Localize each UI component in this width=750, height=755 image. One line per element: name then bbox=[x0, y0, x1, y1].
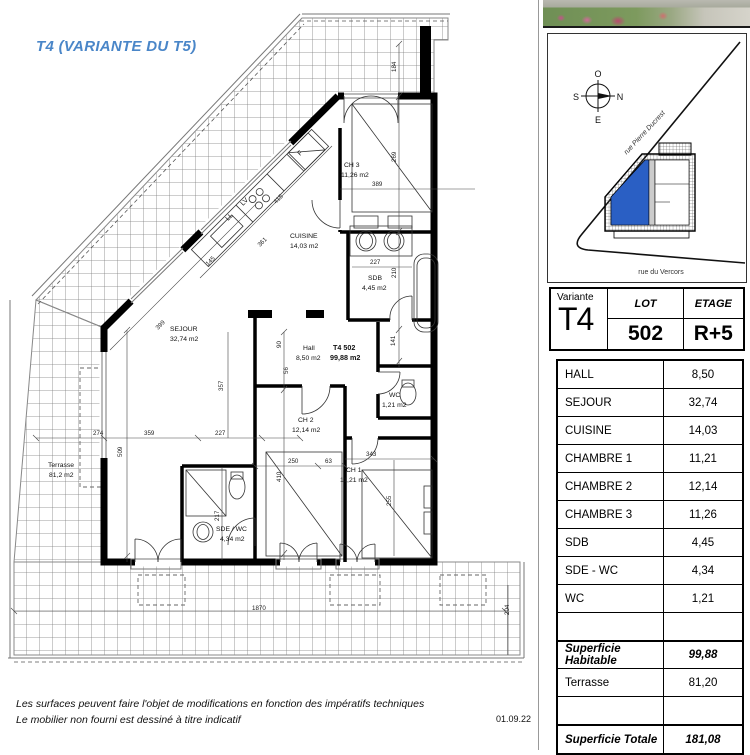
site-plan: O S N E rue Pierre Ducrest rue du Vercor… bbox=[547, 33, 747, 283]
dimension-label: 217 bbox=[214, 510, 221, 521]
room-area: 12,14 bbox=[663, 473, 742, 500]
rooms-table: HALL8,50SEJOUR32,74CUISINE14,03CHAMBRE 1… bbox=[556, 359, 744, 755]
table-row: HALL8,50 bbox=[558, 361, 742, 389]
room-area: 14,03 bbox=[663, 417, 742, 444]
room-label: HALL bbox=[558, 361, 663, 388]
room-label bbox=[558, 697, 663, 724]
room-label: CHAMBRE 2 bbox=[558, 473, 663, 500]
room-name-label: CH 3 bbox=[344, 162, 360, 169]
dimension-label: 274 bbox=[93, 430, 104, 437]
table-row: CHAMBRE 111,21 bbox=[558, 445, 742, 473]
room-area: 11,21 bbox=[663, 445, 742, 472]
compass-o: O bbox=[594, 69, 601, 79]
room-name-label: CUISINE bbox=[290, 233, 318, 240]
compass-s: S bbox=[573, 92, 579, 102]
etage-cell: ETAGE R+5 bbox=[684, 289, 743, 349]
room-area: 99,88 bbox=[663, 642, 742, 668]
room-label: CHAMBRE 3 bbox=[558, 501, 663, 528]
room-name-label: T4 502 bbox=[333, 343, 355, 352]
room-label bbox=[558, 613, 663, 640]
room-name-label: 81,2 m2 bbox=[49, 472, 74, 479]
room-area: 4,34 bbox=[663, 557, 742, 584]
room-label: SDE - WC bbox=[558, 557, 663, 584]
dimension-label: 210 bbox=[391, 267, 398, 278]
footer-note-2: Le mobilier non fourni est dessiné à tit… bbox=[16, 714, 241, 726]
floor-plan: SEJOUR32,74 m2CUISINE14,03 m2CH 311,26 m… bbox=[0, 0, 540, 750]
table-row: SDB4,45 bbox=[558, 529, 742, 557]
compass-e: E bbox=[595, 115, 601, 125]
room-name-label: SDE / WC bbox=[216, 526, 247, 533]
room-name-label: 32,74 m2 bbox=[170, 336, 199, 343]
table-row: Superficie Habitable99,88 bbox=[558, 641, 742, 669]
site-building bbox=[605, 143, 695, 238]
room-label: Superficie Habitable bbox=[558, 642, 663, 668]
room-name-label: CH 2 bbox=[298, 417, 314, 424]
room-area: 32,74 bbox=[663, 389, 742, 416]
table-row: SDE - WC4,34 bbox=[558, 557, 742, 585]
room-label: Terrasse bbox=[558, 669, 663, 696]
room-area: 81,20 bbox=[663, 669, 742, 696]
variante-cell: Variante T4 bbox=[551, 289, 608, 349]
room-area: 1,21 bbox=[663, 585, 742, 612]
photo-thumbnail bbox=[543, 0, 750, 28]
room-area: 8,50 bbox=[663, 361, 742, 388]
compass-icon: O S N E bbox=[573, 69, 623, 125]
street-label-bottom: rue du Vercors bbox=[638, 269, 684, 276]
dimension-label: 359 bbox=[144, 430, 155, 437]
dimension-label: 389 bbox=[372, 181, 383, 188]
room-label: SEJOUR bbox=[558, 389, 663, 416]
wall-stub bbox=[248, 310, 272, 318]
compass-n: N bbox=[617, 92, 624, 102]
room-area bbox=[663, 613, 742, 640]
variante-value: T4 bbox=[558, 301, 593, 338]
table-row: WC1,21 bbox=[558, 585, 742, 613]
room-name-label: 14,03 m2 bbox=[290, 243, 319, 250]
wall-stub bbox=[306, 310, 324, 318]
room-name-label: 11,26 m2 bbox=[341, 172, 369, 179]
dimension-label: 90 bbox=[276, 341, 283, 348]
room-name-label: WC bbox=[389, 392, 400, 399]
room-name-label: 4,45 m2 bbox=[362, 285, 387, 292]
room-label: CUISINE bbox=[558, 417, 663, 444]
date-label: 01.09.22 bbox=[496, 714, 531, 724]
room-area: 181,08 bbox=[663, 726, 742, 753]
wall-block bbox=[420, 26, 431, 96]
room-name-label: 99,88 m2 bbox=[330, 353, 360, 362]
dimension-label: 56 bbox=[283, 367, 290, 374]
etage-label: ETAGE bbox=[684, 289, 743, 319]
table-row bbox=[558, 613, 742, 641]
room-name-label: CH 1 bbox=[346, 467, 362, 474]
dimension-label: 1870 bbox=[252, 605, 266, 612]
dimension-label: 227 bbox=[370, 259, 381, 266]
room-name-label: 4,34 m2 bbox=[220, 536, 245, 543]
room-name-label: 12,14 m2 bbox=[292, 427, 321, 434]
table-row: Superficie Totale181,08 bbox=[558, 725, 742, 753]
table-row bbox=[558, 697, 742, 725]
dimension-label: 509 bbox=[117, 446, 124, 457]
dimension-label: 250 bbox=[288, 458, 299, 465]
table-row: CHAMBRE 311,26 bbox=[558, 501, 742, 529]
lot-label: LOT bbox=[608, 289, 682, 319]
room-area bbox=[663, 697, 742, 724]
header-table: Variante T4 LOT 502 ETAGE R+5 bbox=[549, 287, 745, 351]
dimension-label: 204 bbox=[504, 604, 511, 615]
table-row: Terrasse81,20 bbox=[558, 669, 742, 697]
table-row: CHAMBRE 212,14 bbox=[558, 473, 742, 501]
room-name-label: 8,50 m2 bbox=[296, 355, 321, 362]
dimension-label: 255 bbox=[386, 495, 393, 506]
lot-value: 502 bbox=[608, 319, 682, 349]
room-name-label: Terrasse bbox=[48, 462, 74, 469]
dimension-label: 63 bbox=[325, 458, 332, 465]
table-row: SEJOUR32,74 bbox=[558, 389, 742, 417]
room-label: Superficie Totale bbox=[558, 726, 663, 753]
room-label: SDB bbox=[558, 529, 663, 556]
room-label: CHAMBRE 1 bbox=[558, 445, 663, 472]
etage-value: R+5 bbox=[684, 319, 743, 349]
footer-note-1: Les surfaces peuvent faire l'objet de mo… bbox=[16, 698, 424, 710]
dimension-label: 343 bbox=[366, 451, 377, 458]
dimension-label: 357 bbox=[218, 380, 225, 391]
dimension-label: 269 bbox=[391, 151, 398, 162]
room-area: 4,45 bbox=[663, 529, 742, 556]
room-name-label: SDB bbox=[368, 275, 382, 282]
room-name-label: Hall bbox=[303, 345, 315, 352]
dimension-label: 227 bbox=[215, 430, 226, 437]
sheet-divider bbox=[538, 0, 539, 750]
dimension-label: 184 bbox=[391, 61, 398, 72]
room-name-label: 11,21 m2 bbox=[340, 477, 368, 484]
dimension-label: 410 bbox=[276, 471, 283, 482]
room-area: 11,26 bbox=[663, 501, 742, 528]
room-name-label: SEJOUR bbox=[170, 326, 198, 333]
room-label: WC bbox=[558, 585, 663, 612]
table-row: CUISINE14,03 bbox=[558, 417, 742, 445]
lot-cell: LOT 502 bbox=[608, 289, 683, 349]
dimension-label: 141 bbox=[390, 335, 397, 346]
room-name-label: 1,21 m2 bbox=[382, 402, 407, 409]
